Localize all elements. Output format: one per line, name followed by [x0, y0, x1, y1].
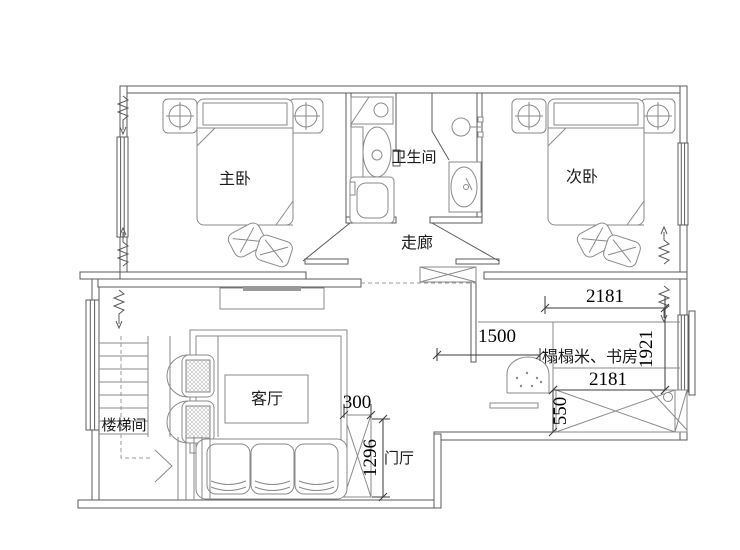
stair-direction-arrow — [155, 450, 172, 482]
nightstand — [289, 99, 323, 133]
living-room-label: 客厅 — [251, 390, 283, 408]
second-bedroom-door — [456, 259, 499, 264]
sofa — [196, 439, 347, 499]
washing-machine — [350, 177, 394, 223]
dim-text: 550 — [550, 397, 571, 426]
stairwell-label: 楼梯间 — [101, 417, 146, 434]
vanity-sink — [449, 162, 481, 212]
dim-text: 2181 — [586, 286, 624, 307]
pillow — [254, 233, 294, 268]
second-bedroom-label: 次卧 — [566, 168, 598, 186]
dim-study-bottom-width: 2181 — [549, 369, 669, 394]
master-bed — [197, 99, 293, 225]
study-wardrobe — [556, 390, 687, 432]
nightstand — [641, 99, 675, 133]
dim-study-top-width: 2181 — [541, 286, 669, 314]
floorplan-canvas: 2181 1921 1500 2181 550 300 — [0, 0, 740, 550]
door-hinge — [664, 393, 673, 402]
corner-sink — [351, 97, 393, 124]
dim-text: 1500 — [478, 326, 516, 347]
second-bed — [548, 99, 644, 225]
outer-step — [80, 272, 120, 279]
pillow — [602, 233, 642, 268]
dim-text: 1921 — [636, 330, 657, 368]
window-second-right — [678, 143, 688, 225]
master-bedroom-door — [305, 259, 348, 264]
dim-text: 300 — [343, 392, 372, 413]
bathroom-label: 卫生间 — [391, 149, 436, 166]
hallway-cabinet — [420, 267, 476, 282]
window-study-right — [678, 311, 695, 395]
tv-screen — [243, 286, 301, 291]
nightstand — [512, 99, 546, 133]
tatami-study-label: 榻榻米、书房 — [542, 348, 638, 366]
tv-cabinet — [220, 286, 324, 309]
entrance-hall-label: 门厅 — [384, 450, 414, 467]
shower-head — [452, 117, 483, 137]
study-step — [490, 403, 538, 408]
armchair — [167, 355, 214, 397]
toilet — [351, 127, 391, 179]
dim-text: 2181 — [589, 369, 627, 390]
corridor-label: 走廊 — [401, 234, 433, 252]
master-bedroom-label: 主卧 — [219, 170, 251, 188]
nightstand — [163, 99, 197, 133]
dim-study-left-width: 1500 — [433, 326, 544, 361]
stair-path — [121, 336, 152, 458]
window-master-left — [117, 137, 128, 237]
dim-text: 1296 — [360, 439, 381, 477]
armchair — [167, 401, 214, 443]
window-stairwell-left — [86, 300, 99, 430]
